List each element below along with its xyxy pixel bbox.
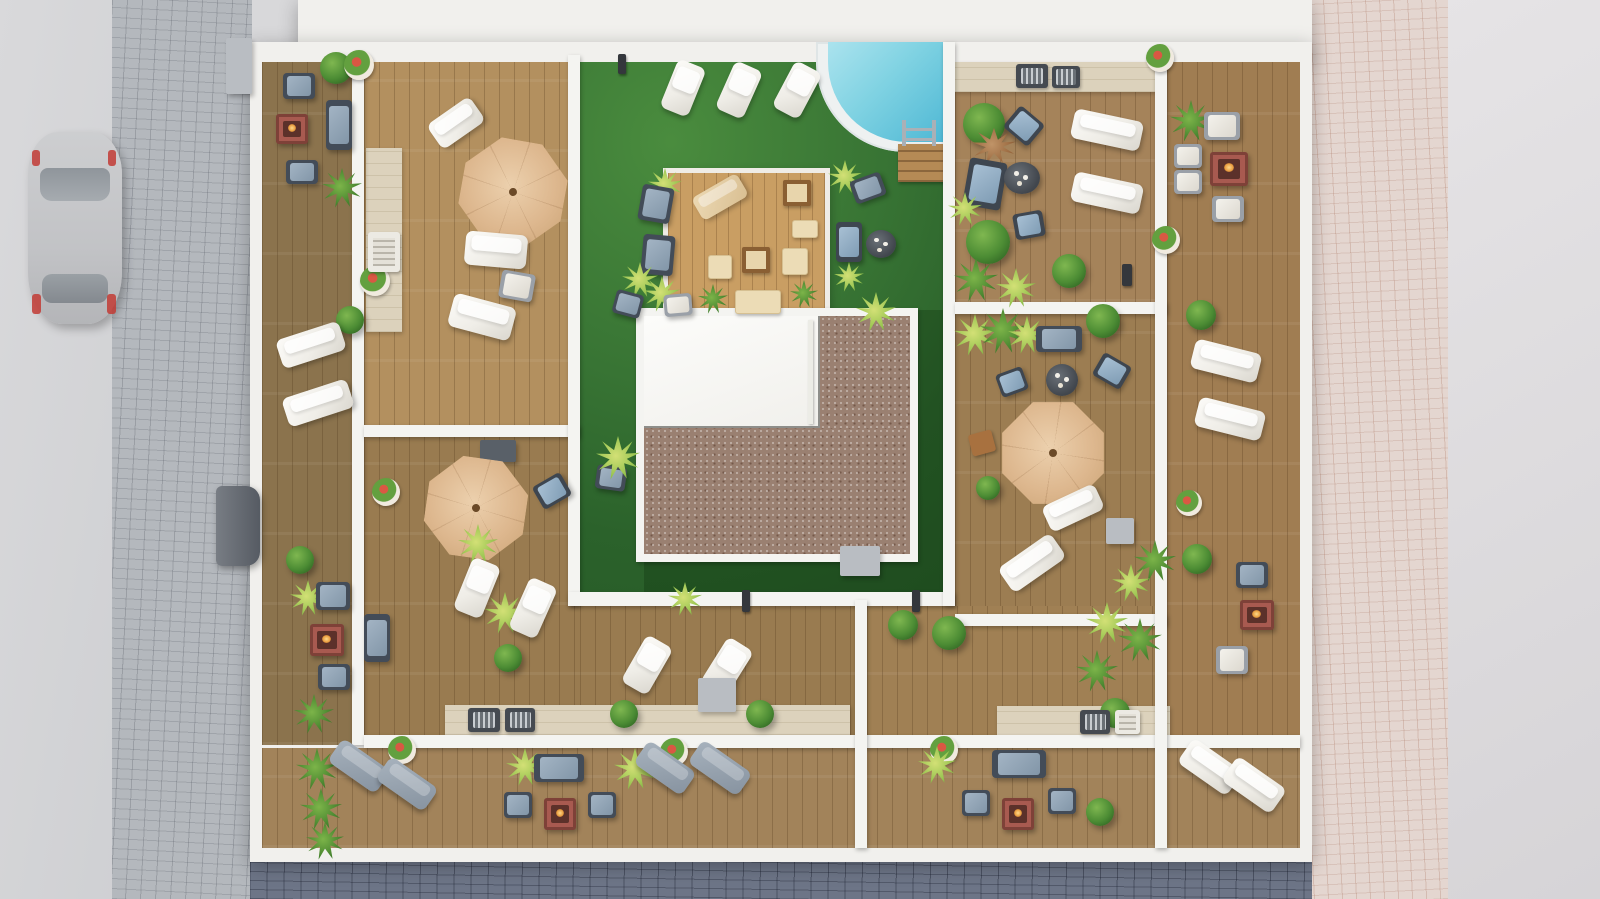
armchair	[1174, 170, 1202, 194]
outdoor-grill	[1052, 66, 1080, 88]
wall-left-strip	[352, 62, 364, 745]
flower-pot	[344, 50, 374, 80]
fire-table	[544, 798, 576, 830]
outdoor-sink	[1115, 710, 1140, 734]
cushion	[782, 248, 808, 275]
car-taillight	[107, 294, 116, 314]
roof-access-box	[226, 38, 252, 94]
cushion	[792, 220, 818, 238]
wall-bottom-center	[855, 600, 867, 848]
armchair	[663, 293, 693, 317]
armchair	[316, 582, 350, 610]
armchair	[1216, 646, 1248, 674]
sidewalk-cobblestone-pink	[1300, 0, 1448, 899]
outdoor-grill	[1080, 710, 1110, 734]
sofa	[640, 234, 675, 277]
sofa	[283, 73, 315, 99]
bush	[1052, 254, 1086, 288]
cushion-box	[742, 247, 770, 273]
sofa	[637, 183, 675, 224]
outdoor-grill	[505, 708, 535, 732]
bush	[286, 546, 314, 574]
coffee-table	[1004, 162, 1040, 194]
armchair	[1174, 144, 1202, 168]
fire-table	[1240, 600, 1274, 630]
rooftop-terrace-render	[0, 0, 1600, 899]
wall-top-left-south	[364, 425, 580, 437]
lamp-bollard	[618, 54, 626, 74]
flower-pot	[1146, 44, 1174, 72]
sofa	[1204, 112, 1240, 140]
fire-table	[1002, 798, 1034, 830]
fire-bowl-table	[1046, 364, 1078, 396]
entrance-canopy	[216, 486, 260, 566]
armchair	[588, 792, 616, 818]
bush	[932, 616, 966, 650]
roof-vent-pipe	[808, 320, 813, 424]
armchair	[1212, 196, 1244, 222]
armchair	[318, 664, 350, 690]
lamp-bollard	[1122, 264, 1132, 286]
fire-table	[276, 114, 308, 144]
wall-right-strip	[1155, 62, 1167, 848]
sofa	[326, 100, 352, 150]
sofa	[534, 754, 584, 782]
wall-top-right-south	[955, 302, 1167, 314]
car-taillight	[108, 150, 116, 166]
bush	[610, 700, 638, 728]
bush	[1086, 304, 1120, 338]
sofa	[1036, 326, 1082, 352]
bush	[494, 644, 522, 672]
bush	[1186, 300, 1216, 330]
cushion	[708, 255, 732, 279]
wall-mid-right-south	[955, 614, 1167, 626]
side-table	[866, 230, 896, 258]
armchair	[1236, 562, 1268, 588]
lamp-bollard	[742, 590, 750, 612]
flower-pot	[1152, 226, 1180, 254]
core-roof-gravel-south	[644, 428, 910, 554]
wall-garden-east	[943, 42, 955, 606]
outdoor-grill	[368, 232, 400, 272]
sidewalk-cobblestone-bottom	[250, 858, 1312, 899]
wall-garden-west	[568, 55, 580, 606]
fire-table	[1210, 152, 1248, 186]
car-taillight	[32, 294, 41, 314]
lamp-bollard	[912, 590, 920, 612]
bush	[1182, 544, 1212, 574]
armchair	[504, 792, 532, 818]
sofa	[364, 614, 390, 662]
flower-pot	[1176, 490, 1202, 516]
wall-garden-south	[568, 592, 955, 606]
flower-pot	[372, 478, 400, 506]
bush	[746, 700, 774, 728]
core-roof-white	[644, 316, 820, 428]
daybed	[735, 290, 781, 314]
cushion-box	[783, 180, 811, 206]
pool-ladder	[902, 120, 936, 146]
armchair	[962, 790, 990, 816]
armchair	[286, 160, 318, 184]
armchair	[498, 269, 536, 302]
sofa	[992, 750, 1046, 778]
outdoor-grill	[1016, 64, 1048, 88]
roof-hatch	[840, 546, 880, 576]
armchair	[1048, 788, 1076, 814]
outdoor-grill	[468, 708, 500, 732]
core-shadow-right	[918, 310, 943, 592]
bush	[888, 610, 918, 640]
bush	[1086, 798, 1114, 826]
car-taillight	[32, 150, 40, 166]
bush	[966, 220, 1010, 264]
ac-unit	[698, 678, 736, 712]
armchair	[1012, 210, 1046, 241]
sidewalk-cobblestone-left	[112, 0, 252, 899]
storage-box	[480, 440, 516, 462]
sun-lounger	[464, 230, 529, 269]
pool-steps	[898, 144, 946, 182]
bush	[976, 476, 1000, 500]
fire-table	[310, 624, 344, 656]
sofa	[836, 222, 862, 262]
ottoman	[1106, 518, 1134, 544]
